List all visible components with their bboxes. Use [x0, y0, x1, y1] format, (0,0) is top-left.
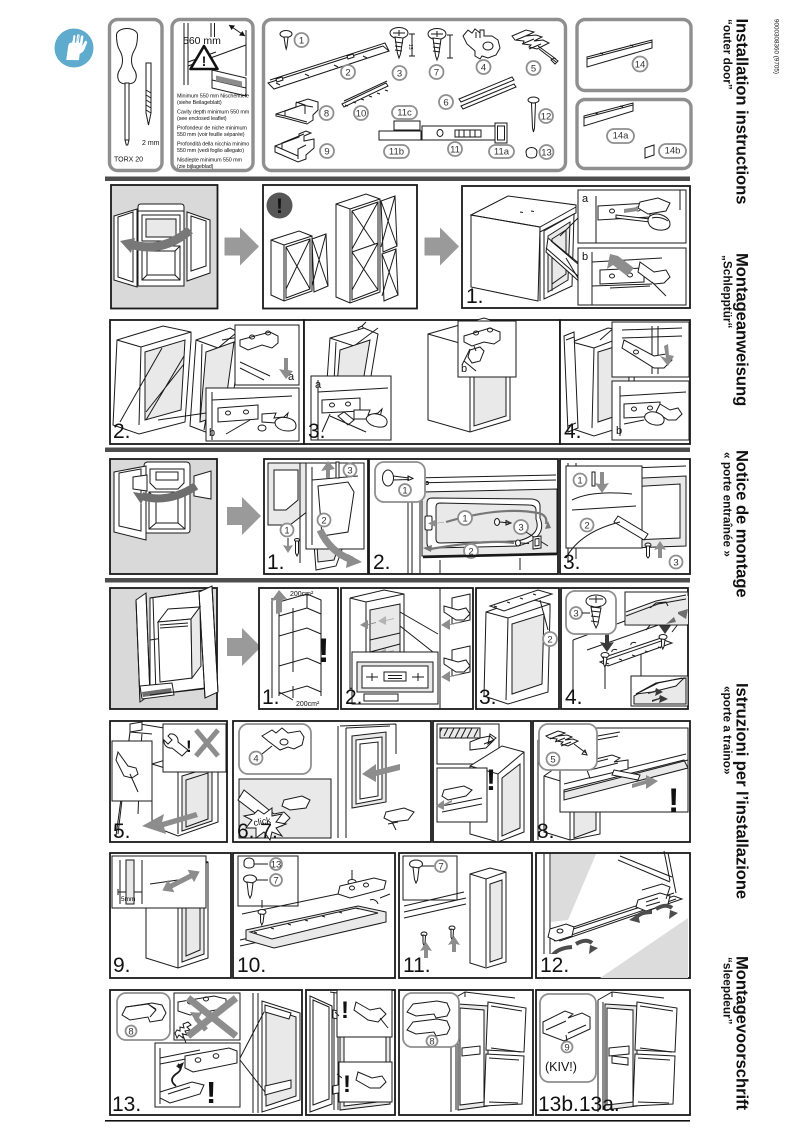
svg-text:9000308360 (9705): 9000308360 (9705): [773, 19, 780, 74]
svg-text:3.: 3.: [563, 551, 581, 574]
svg-text:2.: 2.: [373, 551, 391, 574]
svg-text:Minimum 550 mm Nischentiefe: Minimum 550 mm Nischentiefe: [177, 94, 249, 100]
svg-text:4.: 4.: [564, 420, 582, 443]
svg-text:b: b: [616, 425, 622, 437]
svg-text:Nisdiepte minimum 550 mm: Nisdiepte minimum 550 mm: [177, 158, 243, 164]
svg-text:Profondità della nicchia minim: Profondità della nicchia minimo: [177, 142, 249, 148]
svg-text:9: 9: [324, 147, 329, 158]
svg-text:1: 1: [462, 514, 467, 525]
svg-text:13: 13: [271, 860, 282, 871]
svg-text:5: 5: [531, 64, 536, 75]
svg-text:TORX 20: TORX 20: [114, 157, 143, 164]
svg-text:11.: 11.: [403, 954, 431, 977]
svg-text:b: b: [582, 251, 588, 263]
svg-text:“outer door”: “outer door”: [721, 19, 735, 90]
svg-text:2: 2: [345, 68, 350, 79]
svg-text:2: 2: [547, 635, 552, 646]
svg-text:1.: 1.: [262, 686, 280, 709]
svg-text:!: !: [206, 1075, 216, 1110]
svg-text:12.: 12.: [540, 954, 569, 977]
svg-text:6. 7.: 6. 7.: [237, 820, 278, 843]
svg-text:200cm²: 200cm²: [290, 591, 314, 598]
svg-text:3: 3: [518, 523, 523, 534]
svg-text:(KIV!): (KIV!): [545, 1060, 577, 1074]
svg-text:!: !: [341, 997, 349, 1024]
svg-text:2.: 2.: [113, 420, 131, 443]
svg-text:8: 8: [429, 1037, 434, 1048]
svg-text:3: 3: [397, 69, 402, 80]
svg-text:2: 2: [584, 521, 589, 532]
svg-text:1.: 1.: [466, 285, 484, 308]
svg-text:!: !: [186, 737, 192, 756]
svg-text:8.: 8.: [537, 820, 555, 843]
svg-text:4: 4: [253, 754, 258, 765]
svg-text:4.: 4.: [565, 686, 583, 709]
svg-text:1: 1: [402, 486, 407, 497]
svg-text:12: 12: [541, 112, 552, 123]
svg-text:14: 14: [635, 60, 646, 71]
svg-text:!: !: [318, 632, 329, 670]
svg-text:4: 4: [481, 63, 486, 74]
svg-text:«porte a traino»: «porte a traino»: [721, 686, 735, 775]
svg-text:13: 13: [407, 44, 413, 50]
svg-text:14b: 14b: [665, 146, 681, 157]
svg-text:6: 6: [443, 98, 448, 109]
svg-text:1: 1: [299, 36, 304, 47]
svg-text:!: !: [668, 782, 679, 820]
svg-text:5: 5: [550, 755, 555, 766]
svg-text:560 mm: 560 mm: [183, 35, 221, 47]
svg-text:550 mm (vedi foglio allegato): 550 mm (vedi foglio allegato): [177, 148, 244, 154]
svg-text:11c: 11c: [397, 108, 412, 119]
svg-text:10.: 10.: [237, 954, 266, 977]
svg-text:10: 10: [356, 109, 367, 120]
svg-text:Profondeur de niche minimum: Profondeur de niche minimum: [177, 126, 247, 132]
svg-text:11a: 11a: [494, 147, 510, 158]
svg-text:13: 13: [541, 148, 552, 159]
svg-text:(siehe Beilageblatt): (siehe Beilageblatt): [177, 100, 222, 106]
svg-text:8: 8: [128, 1027, 133, 1038]
svg-text:9.: 9.: [113, 954, 131, 977]
svg-text:7: 7: [438, 862, 443, 873]
svg-text:2: 2: [321, 516, 326, 527]
svg-text:2.: 2.: [345, 686, 363, 709]
svg-text:« porte entraînée »: « porte entraînée »: [721, 452, 735, 557]
svg-text:3.: 3.: [308, 420, 326, 443]
svg-text:!: !: [202, 54, 207, 69]
svg-text:(see enclosed leaflet): (see enclosed leaflet): [177, 116, 227, 122]
svg-text:3: 3: [347, 466, 352, 477]
svg-text:3: 3: [673, 558, 678, 569]
svg-text:3.: 3.: [479, 686, 497, 709]
svg-text:5mm: 5mm: [121, 896, 135, 903]
svg-text:1: 1: [284, 526, 289, 537]
svg-text:8: 8: [324, 109, 329, 120]
svg-text:!: !: [343, 1071, 351, 1098]
svg-text:a: a: [582, 193, 589, 205]
svg-text:7: 7: [273, 876, 278, 887]
svg-text:5.: 5.: [113, 820, 131, 843]
svg-text:“sleepdeur”: “sleepdeur”: [721, 957, 735, 1025]
svg-text:„Schlepptür“: „Schlepptür“: [721, 255, 735, 329]
svg-text:9: 9: [564, 1043, 569, 1054]
svg-text:7: 7: [434, 68, 439, 79]
svg-text:3: 3: [573, 609, 578, 620]
svg-text:1: 1: [577, 476, 582, 487]
svg-text:200cm²: 200cm²: [296, 701, 320, 708]
svg-text:11b: 11b: [389, 147, 404, 158]
svg-text:14a: 14a: [613, 131, 630, 142]
svg-text:(zie bijlageblad): (zie bijlageblad): [177, 164, 214, 170]
svg-text:11: 11: [450, 145, 460, 156]
svg-text:1.: 1.: [267, 551, 285, 574]
svg-text:13b.13a.: 13b.13a.: [538, 1093, 620, 1116]
svg-text:550 mm (voir feuille séparée): 550 mm (voir feuille séparée): [177, 132, 245, 138]
svg-text:2 mm: 2 mm: [142, 140, 160, 147]
svg-text:13.: 13.: [112, 1093, 141, 1116]
svg-text:!: !: [276, 195, 283, 218]
svg-text:Cavity depth minimum 550 mm: Cavity depth minimum 550 mm: [177, 110, 250, 116]
